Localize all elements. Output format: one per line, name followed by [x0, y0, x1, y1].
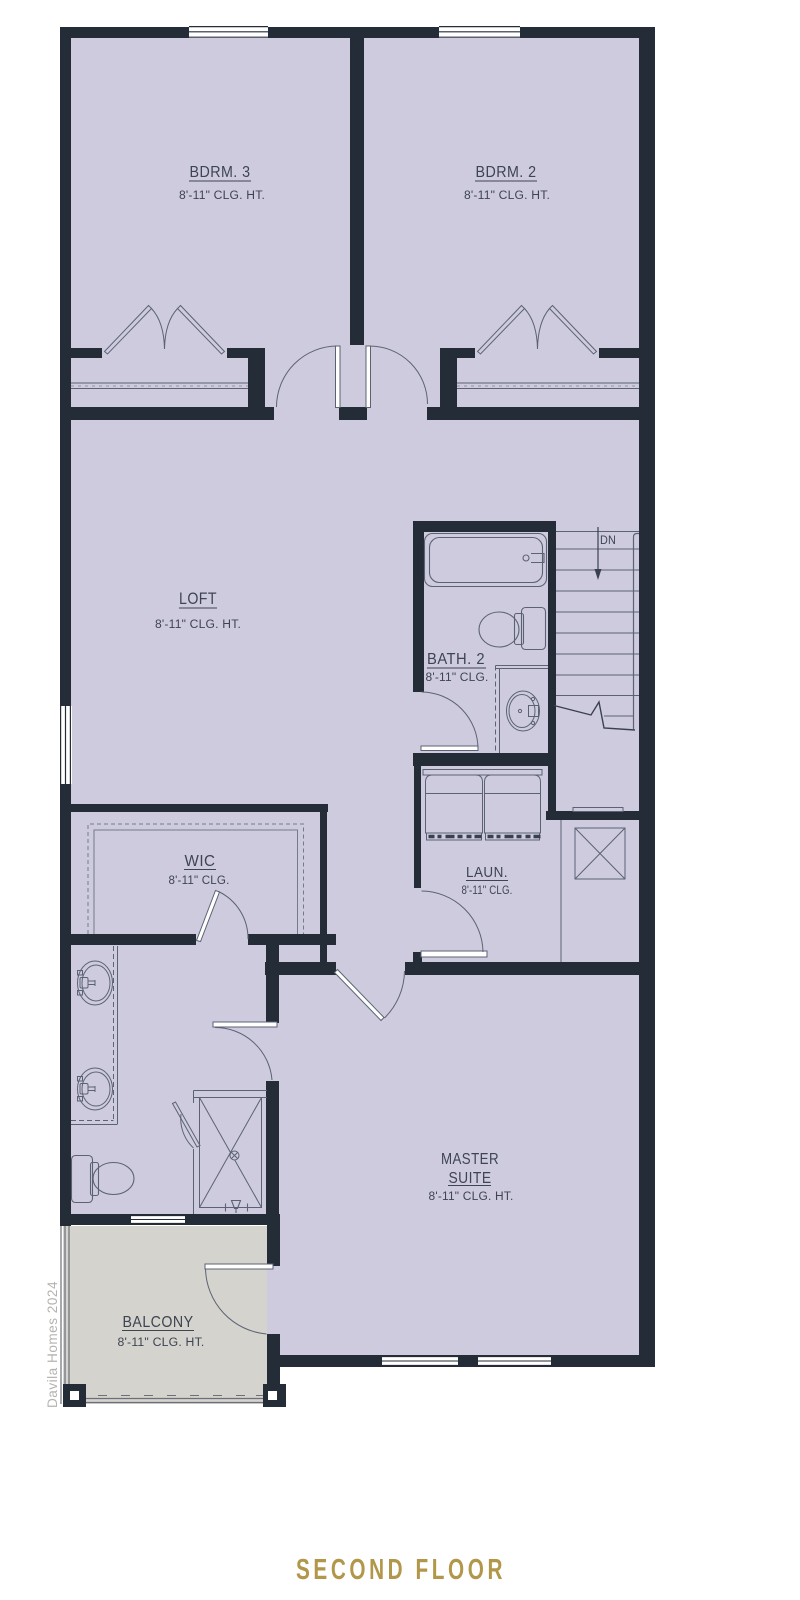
svg-text:8'-11" CLG.: 8'-11" CLG.	[462, 883, 513, 897]
svg-text:LAUN.: LAUN.	[466, 864, 508, 881]
svg-text:8'-11" CLG. HT.: 8'-11" CLG. HT.	[179, 188, 265, 202]
svg-text:8'-11" CLG. HT.: 8'-11" CLG. HT.	[429, 1189, 514, 1203]
svg-text:WIC: WIC	[185, 853, 216, 870]
svg-text:8'-11" CLG. HT.: 8'-11" CLG. HT.	[118, 1335, 205, 1349]
svg-text:BALCONY: BALCONY	[123, 1314, 194, 1331]
svg-text:MASTER: MASTER	[441, 1151, 499, 1168]
svg-text:SUITE: SUITE	[449, 1170, 492, 1187]
svg-text:LOFT: LOFT	[179, 589, 217, 608]
svg-text:8'-11" CLG.: 8'-11" CLG.	[426, 670, 489, 684]
svg-text:DN: DN	[600, 535, 616, 547]
svg-text:Davila Homes 2024: Davila Homes 2024	[45, 1281, 60, 1408]
svg-text:BDRM. 3: BDRM. 3	[190, 164, 251, 181]
svg-text:8'-11" CLG. HT.: 8'-11" CLG. HT.	[155, 617, 241, 631]
svg-text:8'-11" CLG. HT.: 8'-11" CLG. HT.	[464, 188, 550, 202]
svg-text:SECOND FLOOR: SECOND FLOOR	[296, 1554, 506, 1586]
svg-text:8'-11" CLG.: 8'-11" CLG.	[169, 873, 230, 887]
svg-text:BDRM. 2: BDRM. 2	[476, 164, 537, 181]
svg-text:BATH. 2: BATH. 2	[427, 651, 485, 668]
